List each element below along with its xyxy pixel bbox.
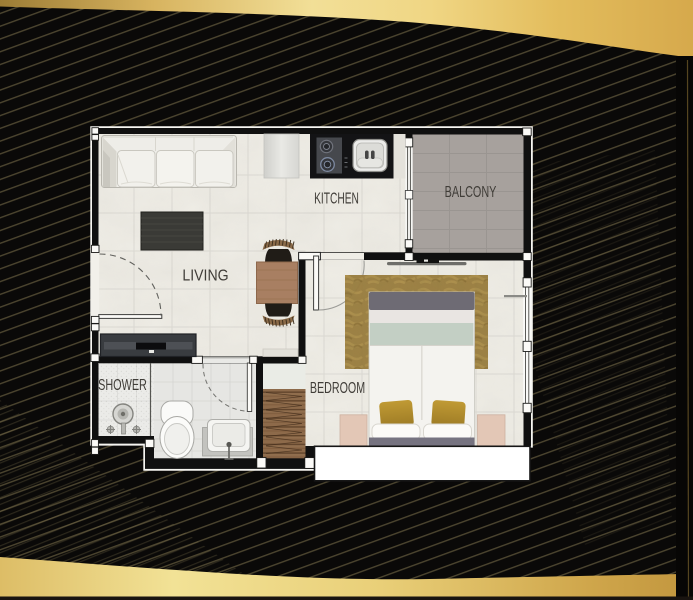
svg-text:KITCHEN: KITCHEN <box>314 189 359 207</box>
svg-text:BEDROOM: BEDROOM <box>310 379 365 396</box>
svg-text:SHOWER: SHOWER <box>98 376 147 393</box>
svg-text:BALCONY: BALCONY <box>445 183 497 200</box>
svg-text:LIVING: LIVING <box>182 268 228 285</box>
